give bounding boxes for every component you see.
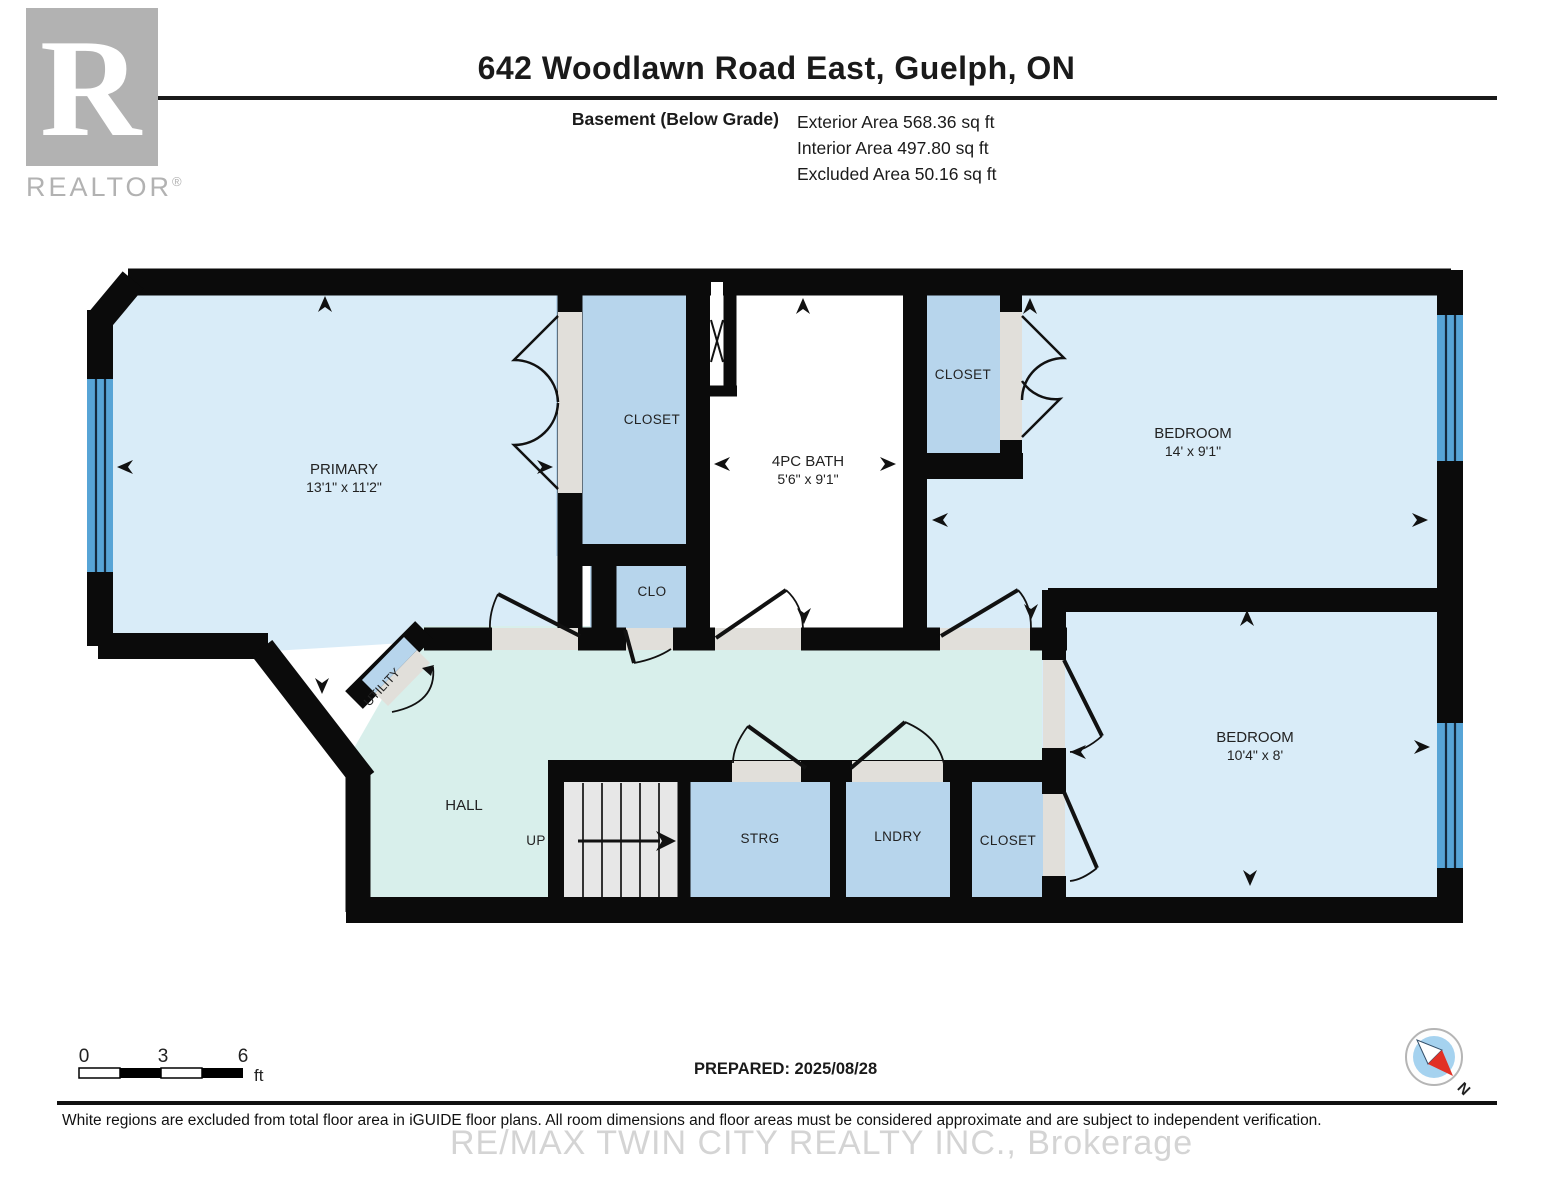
bath-label: 4PC BATH [772, 453, 844, 470]
clo-label: CLO [638, 584, 667, 599]
bedroom-bottom-window [1437, 723, 1463, 868]
scale-tick-3: 3 [158, 1046, 169, 1067]
bedroom-top-dims: 14' x 9'1" [1165, 443, 1221, 459]
bedroom-bottom-label: BEDROOM [1216, 729, 1294, 746]
primary-dims: 13'1" x 11'2" [306, 479, 382, 495]
bath-dims: 5'6" x 9'1" [777, 471, 838, 487]
scale-bar: 0 3 6 ft [79, 1046, 264, 1085]
footer-divider-line [57, 1101, 1497, 1105]
closet-right-label: CLOSET [935, 367, 991, 382]
bedroom-top-window [1437, 315, 1463, 461]
floorplan-drawing: PRIMARY 13'1" x 11'2" CLOSET CLO 4PC BAT… [0, 0, 1553, 1200]
primary-window [87, 379, 113, 572]
duct-chase [711, 282, 723, 385]
closet-bottom-label: CLOSET [980, 833, 1036, 848]
scale-tick-0: 0 [79, 1046, 90, 1067]
scale-unit: ft [254, 1066, 264, 1085]
compass-icon: N [1406, 1029, 1473, 1099]
primary-label: PRIMARY [310, 461, 378, 478]
floorplan-page: 642 Woodlawn Road East, Guelph, ON Basem… [0, 0, 1553, 1200]
scale-tick-6: 6 [238, 1046, 249, 1067]
storage-label: STRG [740, 831, 779, 846]
bedroom-bottom-dims: 10'4" x 8' [1227, 747, 1283, 763]
bedroom-top-label: BEDROOM [1154, 425, 1232, 442]
up-label: UP [526, 833, 546, 848]
prepared-date: PREPARED: 2025/08/28 [694, 1060, 877, 1079]
hall-label: HALL [445, 797, 483, 814]
brokerage-watermark: RE/MAX TWIN CITY REALTY INC., Brokerage [450, 1124, 1193, 1163]
laundry-label: LNDRY [874, 829, 922, 844]
compass-north-label: N [1454, 1079, 1474, 1099]
closet-top-label: CLOSET [624, 412, 680, 427]
